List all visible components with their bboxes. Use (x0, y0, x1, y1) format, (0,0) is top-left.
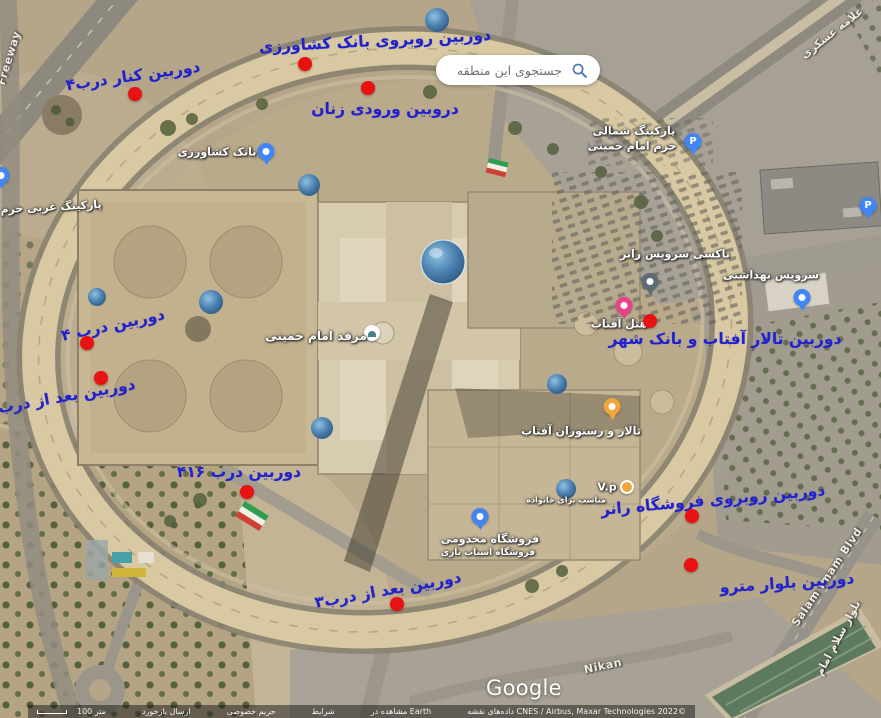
search-label: جستجوی این منطقه (457, 63, 562, 78)
attribution-items: متر 100ارسال بازخوردحریم خصوصیشرایطمشاهد… (77, 707, 686, 716)
satellite-imagery (0, 0, 881, 718)
attribution-item[interactable]: شرایط (312, 707, 335, 716)
search-icon (571, 62, 588, 79)
attribution-bar: متر 100ارسال بازخوردحریم خصوصیشرایطمشاهد… (28, 705, 695, 718)
attribution-item[interactable]: مشاهده در Earth (371, 707, 431, 716)
attribution-item: داده‌های نقشه CNES / Airbus, Maxar Techn… (467, 707, 686, 716)
map-scale-label: متر 100 (77, 707, 106, 716)
scale-bar (37, 710, 67, 714)
search-this-area-button[interactable]: جستجوی این منطقه (436, 55, 600, 85)
attribution-item[interactable]: حریم خصوصی (227, 707, 276, 716)
google-logo[interactable]: Google (486, 676, 562, 700)
map-viewport[interactable]: PP بانک کشاورزیمرقد امام خمینیپارکینگ شم… (0, 0, 881, 718)
attribution-item[interactable]: ارسال بازخورد (142, 707, 191, 716)
